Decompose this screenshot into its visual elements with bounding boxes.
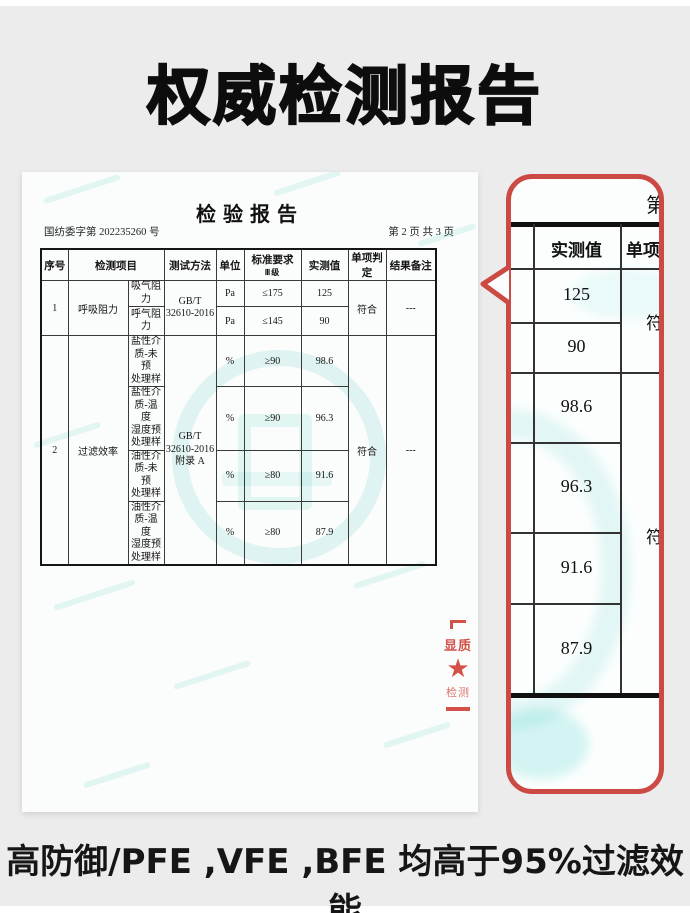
cell-measured: 98.6 [301,336,348,387]
test-results-table: 序号 检测项目 测试方法 单位 标准要求Ⅲ级 实测值 单项判定 结果备注 1 呼… [40,248,437,566]
col-header-unit: 单位 [216,249,244,281]
stamp-star-icon: ★ [436,654,478,684]
cell-measured: 90 [301,307,348,336]
watermark-dash [53,579,136,611]
stamp-text-bottom: 检测 [436,684,478,700]
top-white-strip [0,0,690,6]
cell-requirement: ≤145 [244,307,301,336]
marketing-image: 权威检测报告 检验报告 国纺委字第 202235260 号 第 2 页 共 3 … [0,0,690,913]
callout-table-bottom-border [511,693,659,698]
col-header-judgement: 单项判定 [348,249,386,281]
col-header-method: 测试方法 [164,249,216,281]
callout-judgement-partial: 符 [646,309,663,334]
callout-row-line [511,372,659,374]
cell-measured: 96.3 [301,387,348,451]
callout-watermark-blob [506,709,589,779]
requirement-level: Ⅲ级 [246,267,300,278]
callout-page-char: 第 [646,189,664,218]
watermark-dash [273,172,341,197]
cell-unit: % [216,501,244,565]
banner-title: 权威检测报告 [0,46,690,137]
cell-item: 呼吸阻力 [68,281,128,336]
report-title: 检验报告 [22,198,478,227]
watermark-dash [383,721,451,748]
callout-row-line [511,603,620,605]
cell-index: 1 [41,281,68,336]
cell-measured: 91.6 [301,450,348,501]
cell-sub-item: 呼气阻 力 [128,307,164,336]
cell-method: GB/T 32610-2016 [164,281,216,336]
callout-row-line [511,442,620,444]
cell-remark: --- [386,281,436,336]
cell-requirement: ≥90 [244,387,301,451]
table-header-row: 序号 检测项目 测试方法 单位 标准要求Ⅲ级 实测值 单项判定 结果备注 [41,249,436,281]
stamp-dash [446,707,470,711]
cell-judgement: 符合 [348,336,386,566]
col-header-requirement: 标准要求Ⅲ级 [244,249,301,281]
cell-item: 过滤效率 [68,336,128,566]
callout-value: 91.6 [533,557,620,578]
cell-unit: Pa [216,281,244,307]
col-header-index: 序号 [41,249,68,281]
cell-judgement: 符合 [348,281,386,336]
callout-header-judgement: 单项 [626,236,660,261]
watermark-dash [173,660,251,690]
callout-value: 87.9 [533,638,620,659]
cell-remark: --- [386,336,436,566]
report-document: 检验报告 国纺委字第 202235260 号 第 2 页 共 3 页 序号 检测… [22,172,478,812]
cell-requirement: ≥80 [244,501,301,565]
cell-sub-item: 盐性介 质-未预 处理样 [128,336,164,387]
report-doc-number: 国纺委字第 202235260 号 [44,224,160,239]
cell-requirement: ≥90 [244,336,301,387]
zoom-callout: 第 实测值 单项 125 90 98.6 96.3 91.6 87.9 符 符 [506,174,664,794]
cell-requirement: ≤175 [244,281,301,307]
watermark-dash [83,761,151,788]
cell-unit: % [216,450,244,501]
callout-row-line [511,532,620,534]
red-stamp-icon: 显质 ★ 检测 [436,620,478,711]
stamp-text-top: 显质 [436,635,478,654]
col-header-measured: 实测值 [301,249,348,281]
col-header-remark: 结果备注 [386,249,436,281]
cell-sub-item: 油性介 质-温度 湿度预 处理样 [128,501,164,565]
cell-method: GB/T 32610-2016 附录 A [164,336,216,566]
cell-sub-item: 盐性介 质-温度 湿度预 处理样 [128,387,164,451]
callout-value: 96.3 [533,476,620,497]
requirement-label: 标准要求 [252,255,294,266]
callout-value: 98.6 [533,396,620,417]
callout-value: 90 [533,336,620,357]
cell-sub-item: 吸气阻 力 [128,281,164,307]
callout-arrow-icon [477,263,511,307]
cell-measured: 125 [301,281,348,307]
table-row: 1 呼吸阻力 吸气阻 力 GB/T 32610-2016 Pa ≤175 125… [41,281,436,307]
cell-index: 2 [41,336,68,566]
callout-row-line [511,322,620,324]
report-page-indicator: 第 2 页 共 3 页 [388,224,454,239]
stamp-bracket [450,620,466,629]
cell-measured: 87.9 [301,501,348,565]
bottom-caption: 高防御/PFE ,VFE ,BFE 均高于95%过滤效能 [0,834,690,913]
table-row: 2 过滤效率 盐性介 质-未预 处理样 GB/T 32610-2016 附录 A… [41,336,436,387]
cell-unit: Pa [216,307,244,336]
callout-row-line [511,268,659,270]
callout-header-measured: 实测值 [533,236,620,261]
col-header-item: 检测项目 [68,249,164,281]
callout-vertical-line [620,224,622,695]
cell-unit: % [216,387,244,451]
cell-unit: % [216,336,244,387]
cell-sub-item: 油性介 质-未预 处理样 [128,450,164,501]
cell-requirement: ≥80 [244,450,301,501]
callout-judgement-partial: 符 [646,523,663,548]
callout-value: 125 [533,284,620,305]
